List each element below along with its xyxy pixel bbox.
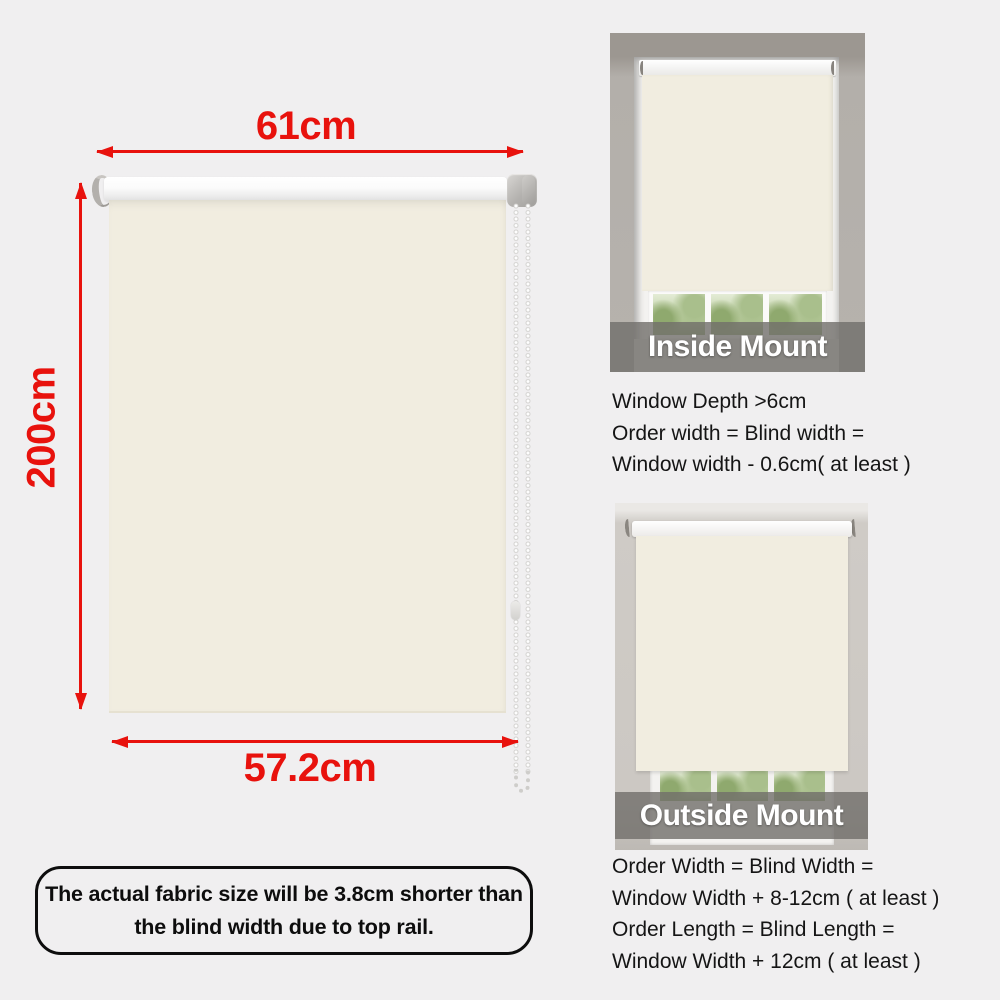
spec-line: Window Width + 8-12cm ( at least ) [612, 883, 939, 915]
width-dimension-label: 61cm [230, 104, 382, 149]
fabric-width-dimension-label: 57.2cm [234, 746, 386, 791]
inside-mount-photo: Inside Mount [610, 33, 865, 372]
outside-mount-banner: Outside Mount [615, 792, 868, 839]
spec-line: Window width - 0.6cm( at least ) [612, 449, 911, 481]
height-dimension-arrow [79, 183, 82, 709]
outside-mount-specs: Order Width = Blind Width = Window Width… [612, 851, 939, 977]
height-dimension-label: 200cm [20, 348, 65, 508]
inside-mount-banner: Inside Mount [610, 322, 865, 372]
bead-chain [511, 203, 533, 795]
chain-clutch-cap [522, 175, 535, 206]
outside-mount-banner-label: Outside Mount [640, 799, 843, 833]
blind-fabric-panel [109, 200, 506, 713]
spec-line: Order Length = Blind Length = [612, 914, 939, 946]
photo-blind-rail [632, 521, 852, 537]
note-line-2: the blind width due to top rail. [134, 911, 433, 944]
fabric-width-dimension-arrow [112, 740, 518, 743]
blind-top-rail [104, 177, 507, 201]
blind-size-infographic: 61cm 200cm 57.2cm The actual fabric size… [0, 0, 1000, 1000]
fabric-size-note-box: The actual fabric size will be 3.8cm sho… [35, 866, 533, 955]
chain-strand-back [525, 203, 531, 775]
spec-line: Order width = Blind width = [612, 418, 911, 450]
photo-blind-fabric [642, 75, 833, 291]
photo-blind-rail [639, 60, 836, 76]
chain-loop [514, 769, 530, 793]
width-dimension-arrow [97, 150, 523, 153]
chain-strand-front [513, 203, 519, 775]
photo-right-bracket-icon [831, 61, 836, 75]
inside-mount-specs: Window Depth >6cm Order width = Blind wi… [612, 386, 911, 481]
spec-line: Window Width + 12cm ( at least ) [612, 946, 939, 978]
chain-connector [511, 601, 520, 620]
photo-left-bracket-icon [640, 61, 645, 75]
spec-line: Window Depth >6cm [612, 386, 911, 418]
outside-mount-photo: Outside Mount [615, 503, 868, 850]
note-line-1: The actual fabric size will be 3.8cm sho… [45, 878, 523, 911]
spec-line: Order Width = Blind Width = [612, 851, 939, 883]
inside-mount-banner-label: Inside Mount [648, 330, 827, 364]
photo-blind-fabric [636, 536, 848, 771]
